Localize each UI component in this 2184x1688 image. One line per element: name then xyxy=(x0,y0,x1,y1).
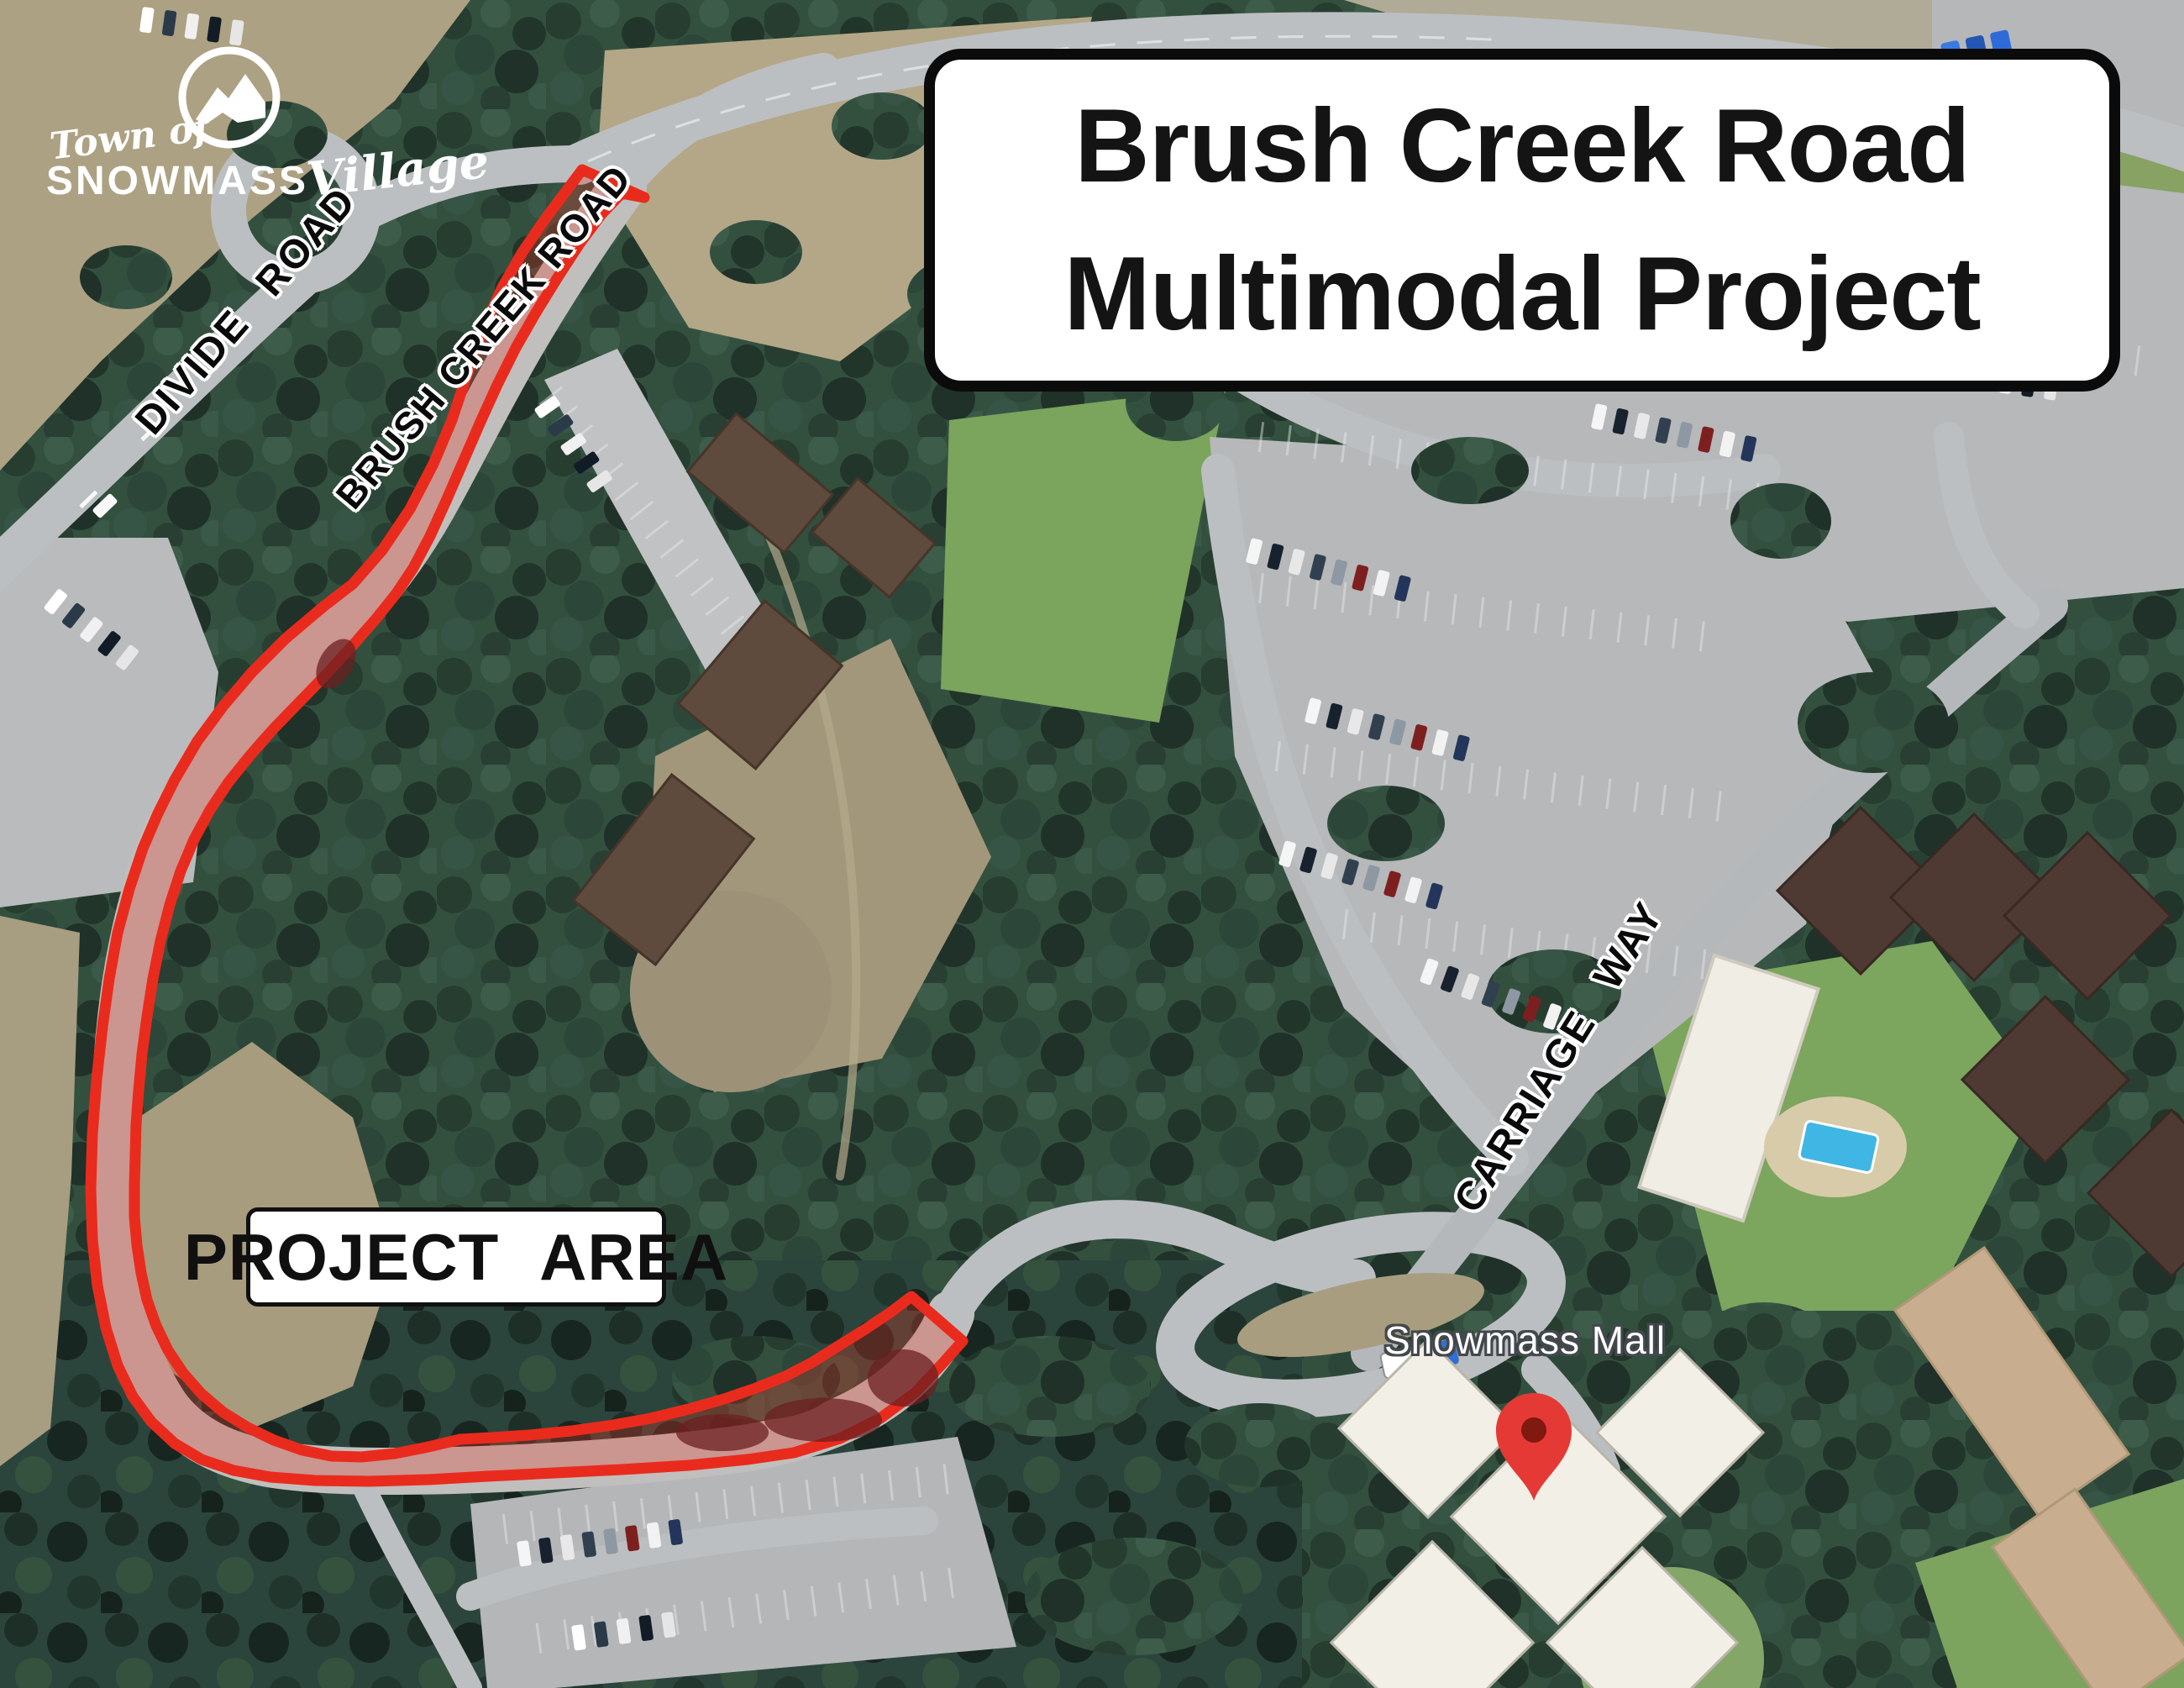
project-area-label-text: PROJECT AREA xyxy=(184,1219,728,1296)
logo-snowmass: SNOWMASS xyxy=(46,158,308,204)
title-line-2: Multimodal Project xyxy=(1063,220,1980,368)
pool-area xyxy=(1764,1096,1907,1197)
town-logo: Town of SNOWMASS Village xyxy=(46,40,449,221)
title-line-1: Brush Creek Road xyxy=(1074,72,1970,220)
map-label-snowmass-mall: Snowmass Mall xyxy=(1384,1317,1666,1363)
map-canvas: Town of SNOWMASS Village Brush Creek Roa… xyxy=(0,0,2184,1688)
title-box: Brush Creek Road Multimodal Project xyxy=(924,49,2120,392)
map-pin-icon xyxy=(1494,1391,1573,1502)
project-area-label: PROJECT AREA xyxy=(246,1207,666,1307)
